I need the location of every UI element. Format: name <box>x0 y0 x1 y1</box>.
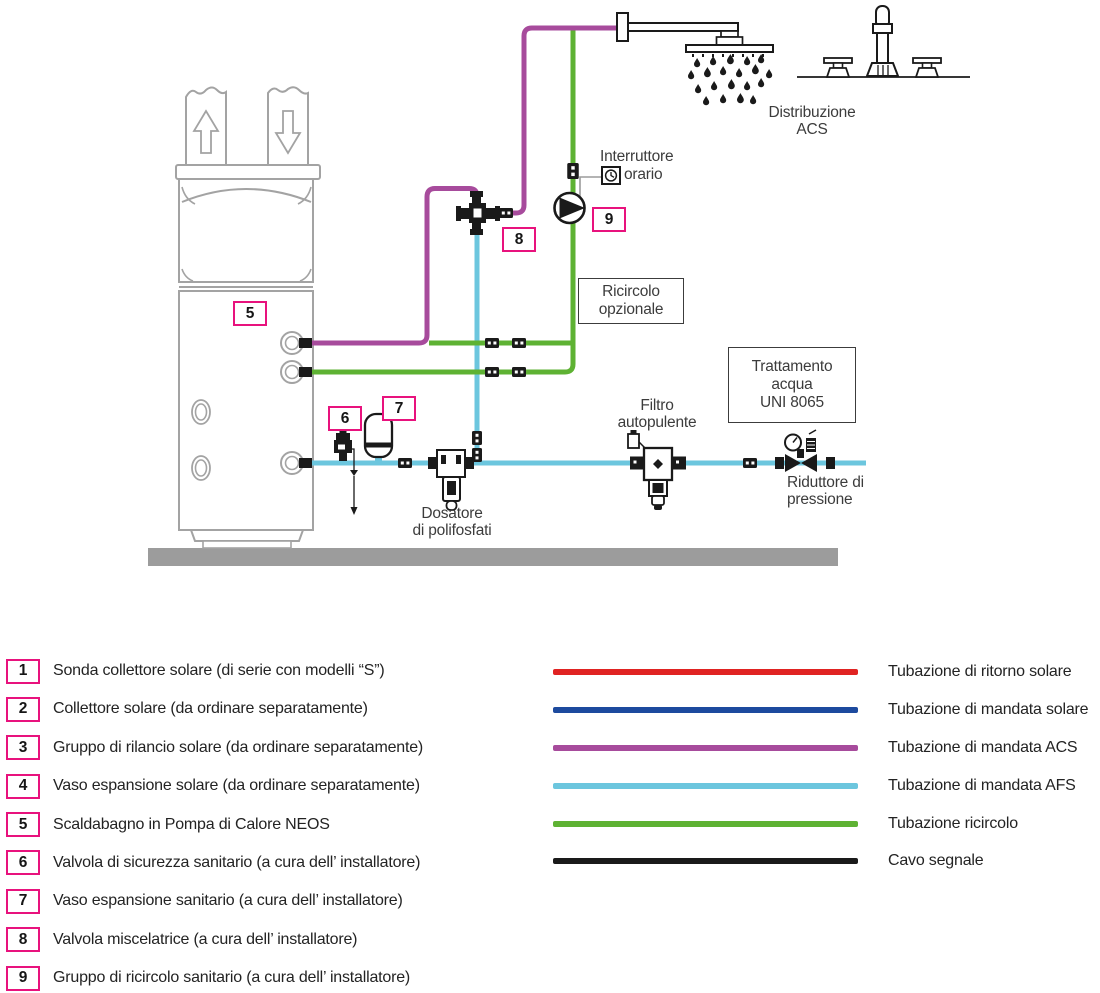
tank-base <box>191 530 303 541</box>
badge-expansion-vessel: 7 <box>382 396 416 421</box>
expansion-vessel-icon <box>365 414 392 464</box>
legend-item: 3Gruppo di rilancio solare (da ordinare … <box>6 737 423 759</box>
faucet-icon <box>797 6 970 77</box>
legend-badge: 9 <box>6 966 40 991</box>
timer-clock-icon <box>602 167 620 184</box>
ricircolo-opzionale-box: Ricircolo opzionale <box>578 278 684 324</box>
badge-recirc-group: 9 <box>592 207 626 232</box>
pipe-swatch <box>553 745 858 751</box>
recirc-pump-icon <box>555 193 586 223</box>
legend-badge: 1 <box>6 659 40 684</box>
label-riduttore-pressione: Riduttore di pressione <box>787 474 864 508</box>
legend-badge: 6 <box>6 850 40 875</box>
acs-outlet-pipe <box>305 189 477 344</box>
signal-cable-line <box>580 177 601 196</box>
union-fitting-icon <box>499 208 513 218</box>
self-cleaning-filter-icon <box>628 430 686 510</box>
badge-safety-valve: 6 <box>328 406 362 431</box>
acs-port-nipple <box>299 338 312 348</box>
legend-badge: 7 <box>6 889 40 914</box>
mixing-valve-icon <box>456 191 500 235</box>
legend-line-item: Tubazione ricircolo <box>553 805 1088 843</box>
legend-badge: 3 <box>6 735 40 760</box>
legend-line-item: Tubazione di mandata solare <box>553 691 1088 729</box>
legend-item: 9Gruppo di ricircolo sanitario (a cura d… <box>6 967 423 989</box>
afs-port-nipple <box>299 458 312 468</box>
tank-collar <box>176 165 320 179</box>
pressure-reducer-icon <box>775 430 835 472</box>
recirc-port-nipple <box>299 367 312 377</box>
faucet-handle-right <box>913 58 941 77</box>
label-orario: orario <box>624 166 662 183</box>
water-drops <box>688 54 772 105</box>
legend-line-item: Tubazione di ritorno solare <box>553 654 1088 692</box>
label-distribuzione-acs: Distribuzione ACS <box>752 104 872 138</box>
safety-valve-icon <box>334 429 358 515</box>
component-legend: 1Sonda collettore solare (di serie con m… <box>6 660 423 993</box>
legend-item: 7Vaso espansione sanitario (a cura dell’… <box>6 890 423 912</box>
legend-badge: 8 <box>6 927 40 952</box>
legend-line-item: Tubazione di mandata ACS <box>553 729 1088 767</box>
valve-icon <box>567 163 579 179</box>
label-dosatore-polifosfati: Dosatore di polifosfati <box>397 505 507 539</box>
pipe-swatch <box>553 858 858 864</box>
tank-top-unit <box>179 179 313 282</box>
tank-foot <box>203 541 291 548</box>
floor <box>148 548 838 566</box>
pipe-color-legend: Tubazione di ritorno solare Tubazione di… <box>553 654 1088 881</box>
legend-item: 2Collettore solare (da ordinare separata… <box>6 698 423 720</box>
faucet-handle-left <box>824 58 852 77</box>
legend-badge: 4 <box>6 774 40 799</box>
pipe-swatch <box>553 669 858 675</box>
badge-mixing-valve: 8 <box>502 227 536 252</box>
polyphosphate-doser-icon <box>428 450 474 510</box>
legend-item: 1Sonda collettore solare (di serie con m… <box>6 660 423 682</box>
label-interruttore: Interruttore <box>600 148 673 165</box>
legend-item: 6Valvola di sicurezza sanitario (a cura … <box>6 852 423 874</box>
installation-diagram-page: 5 6 7 8 9 Distribuzione ACS Interruttore… <box>0 0 1100 993</box>
legend-item: 4Vaso espansione solare (da ordinare sep… <box>6 775 423 797</box>
pipe-swatch <box>553 783 858 789</box>
trattamento-acqua-box: Trattamento acqua UNI 8065 <box>728 347 856 423</box>
ricircolo-return-pipe <box>305 26 573 372</box>
shower-icon <box>617 13 773 105</box>
badge-tank: 5 <box>233 301 267 326</box>
pipe-swatch <box>553 821 858 827</box>
legend-line-item: Tubazione di mandata AFS <box>553 767 1088 805</box>
piping-diagram-canvas <box>0 0 1100 630</box>
legend-badge: 5 <box>6 812 40 837</box>
legend-line-item: Cavo segnale <box>553 842 1088 880</box>
acs-supply-pipe <box>494 28 619 213</box>
legend-badge: 2 <box>6 697 40 722</box>
legend-item: 5Scaldabagno in Pompa di Calore NEOS <box>6 814 423 836</box>
pipe-swatch <box>553 707 858 713</box>
label-filtro-autopulente: Filtro autopulente <box>602 397 712 431</box>
legend-item: 8Valvola miscelatrice (a cura dell’ inst… <box>6 929 423 951</box>
